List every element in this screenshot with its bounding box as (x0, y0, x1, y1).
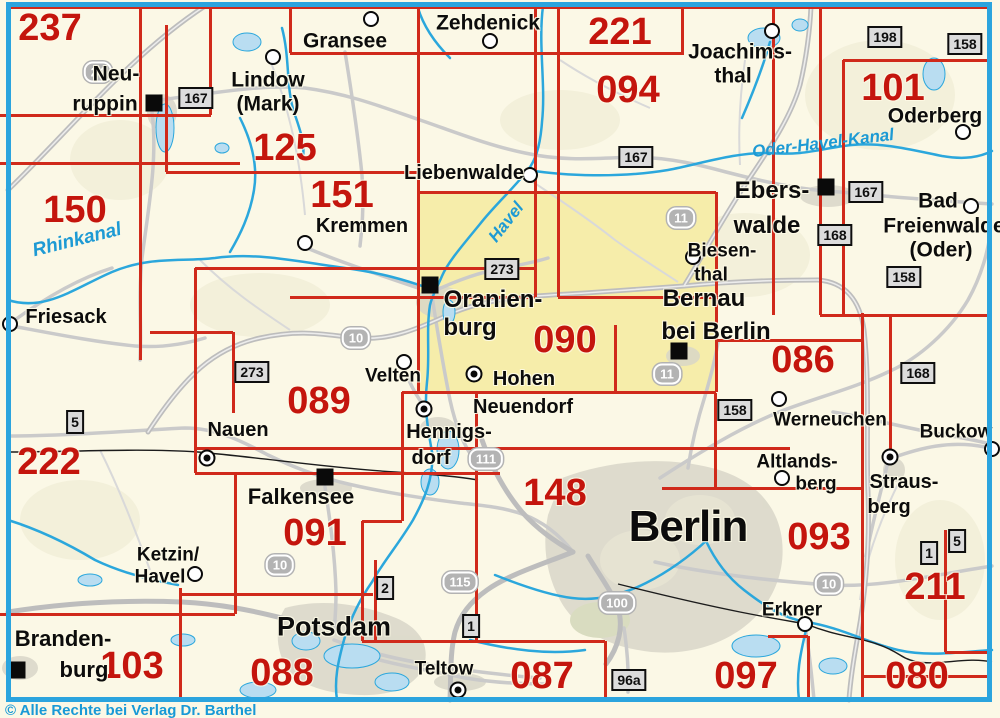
city-label-berlin-34: Berlin (629, 505, 748, 549)
city-label-burg-43: burg (443, 316, 496, 340)
sheet-number-101: 101 (861, 69, 924, 107)
city-label-biesen-14: Biesen- (688, 242, 757, 261)
city-label-mark-3: (Mark) (236, 94, 299, 115)
city-label-erkner-37: Erkner (762, 601, 822, 620)
city-label-oderberg-8: Oderberg (888, 106, 983, 127)
sheet-number-080: 080 (885, 657, 948, 695)
city-label-berg-30: berg (795, 475, 836, 494)
map-sheet-index: 2410111111111510010101671671671681581981… (0, 0, 1000, 718)
water-label-oder-havel-kanal: Oder-Havel-Kanal (751, 126, 895, 160)
city-label-bad-9: Bad (918, 191, 958, 212)
city-label-hennigs-24: Hennigs- (406, 422, 492, 442)
city-label-bernau-16: Bernau (663, 287, 746, 311)
sheet-number-125: 125 (253, 129, 316, 167)
city-label-gransee-4: Gransee (303, 31, 387, 52)
sheet-number-087: 087 (510, 657, 573, 695)
city-label-havel-36: Havel (135, 568, 186, 587)
sheet-number-091: 091 (283, 514, 346, 552)
label-layer: 2371252210941011501512220890900860911480… (0, 0, 1000, 718)
city-label-liebenwalde-18: Liebenwalde (404, 163, 524, 183)
city-label-straus-31: Straus- (870, 472, 939, 492)
sheet-number-237: 237 (18, 9, 81, 47)
city-label-friesack-20: Friesack (25, 307, 106, 327)
city-label-buckow-28: Buckow (920, 423, 993, 442)
city-label-ruppin-1: ruppin (72, 94, 137, 115)
sheet-number-088: 088 (250, 654, 313, 692)
city-label-thal-15: thal (694, 266, 728, 285)
city-label-oder-11: (Oder) (910, 240, 973, 261)
city-label-branden-40: Branden- (15, 628, 112, 650)
city-label-hohen-22: Hohen (493, 369, 555, 389)
city-label-ketzin-35: Ketzin/ (137, 546, 199, 565)
sheet-number-103: 103 (100, 647, 163, 685)
city-label-neuendorf-23: Neuendorf (473, 397, 573, 417)
sheet-number-222: 222 (17, 443, 80, 481)
city-label-thal-7: thal (714, 66, 751, 87)
sheet-number-221: 221 (588, 13, 651, 51)
city-label-oranien-42: Oranien- (444, 288, 543, 312)
city-label-velten-21: Velten (365, 367, 421, 386)
city-label-dorf-25: dorf (412, 448, 451, 468)
sheet-number-089: 089 (287, 382, 350, 420)
city-label-teltow-39: Teltow (415, 660, 474, 679)
city-label-potsdam-38: Potsdam (277, 614, 391, 641)
city-label-lindow-2: Lindow (231, 70, 304, 91)
sheet-number-097: 097 (714, 657, 777, 695)
water-label-havel: Havel (485, 199, 526, 245)
city-label-zehdenick-5: Zehdenick (436, 13, 540, 34)
city-label-kremmen-19: Kremmen (316, 216, 408, 236)
city-label-altlands-29: Altlands- (756, 453, 837, 472)
sheet-number-090: 090 (533, 321, 596, 359)
copyright-text: © Alle Rechte bei Verlag Dr. Barthel (5, 702, 256, 718)
sheet-number-093: 093 (787, 518, 850, 556)
city-label-freienwalde-10: Freienwalde (883, 216, 1000, 237)
city-label-neu-0: Neu- (93, 64, 140, 85)
city-label-burg-41: burg (60, 659, 109, 681)
sheet-number-094: 094 (596, 71, 659, 109)
city-label-walde-13: walde (734, 214, 801, 238)
sheet-number-086: 086 (771, 341, 834, 379)
sheet-number-211: 211 (904, 568, 965, 606)
city-label-werneuchen-27: Werneuchen (773, 411, 887, 430)
city-label-bei-berlin-17: bei Berlin (661, 320, 770, 344)
city-label-falkensee-33: Falkensee (248, 486, 354, 508)
sheet-number-148: 148 (523, 474, 586, 512)
sheet-number-151: 151 (310, 176, 373, 214)
city-label-nauen-26: Nauen (207, 420, 268, 440)
city-label-ebers-12: Ebers- (735, 179, 810, 203)
city-label-berg-32: berg (867, 497, 910, 517)
city-label-joachims-6: Joachims- (688, 42, 792, 63)
